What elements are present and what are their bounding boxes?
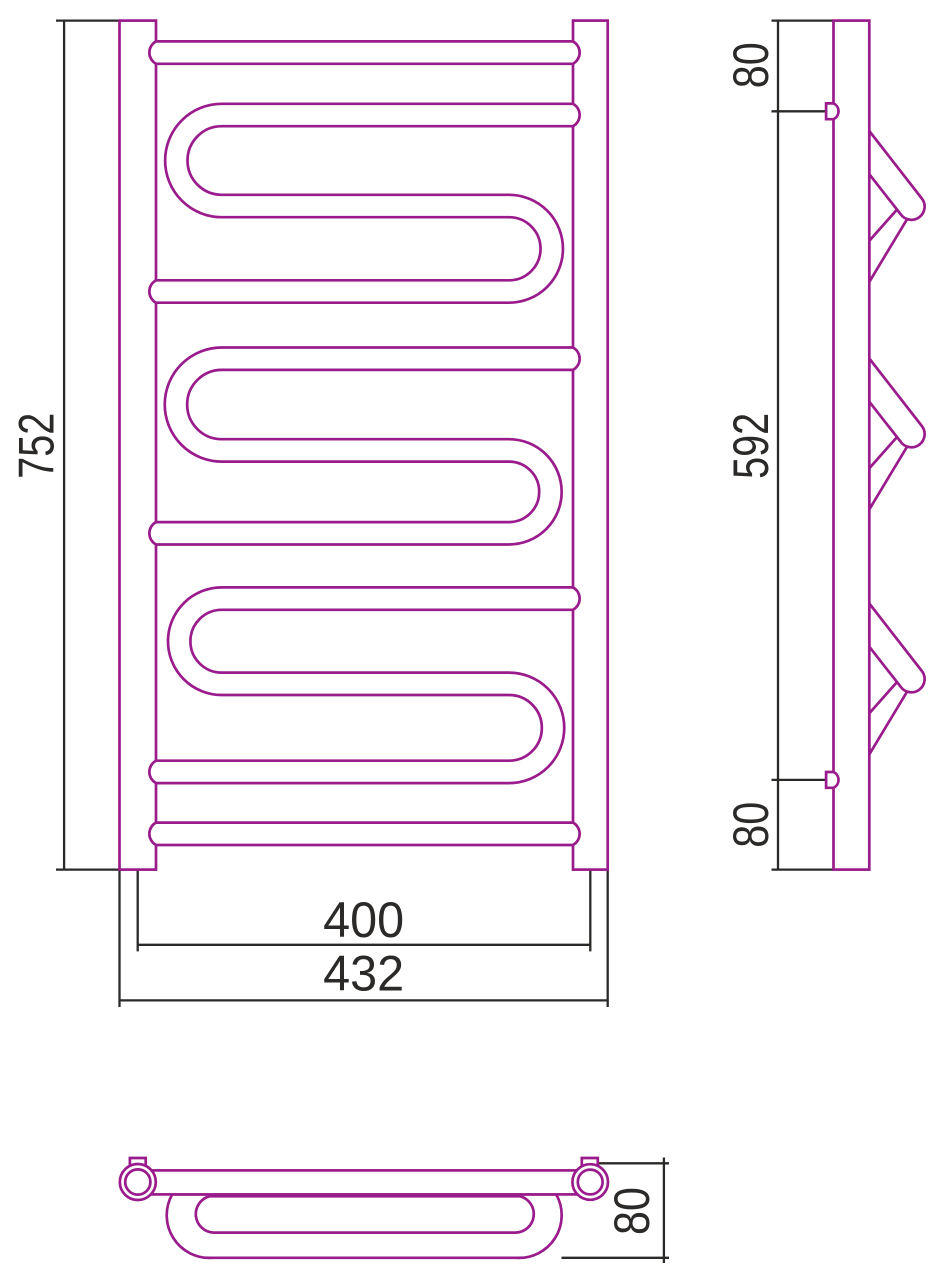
svg-text:752: 752 xyxy=(8,413,64,479)
svg-text:80: 80 xyxy=(604,1187,660,1235)
svg-text:592: 592 xyxy=(723,413,779,479)
svg-text:432: 432 xyxy=(323,946,404,1002)
svg-text:80: 80 xyxy=(723,42,779,88)
svg-text:400: 400 xyxy=(323,892,404,948)
svg-text:80: 80 xyxy=(723,802,779,848)
